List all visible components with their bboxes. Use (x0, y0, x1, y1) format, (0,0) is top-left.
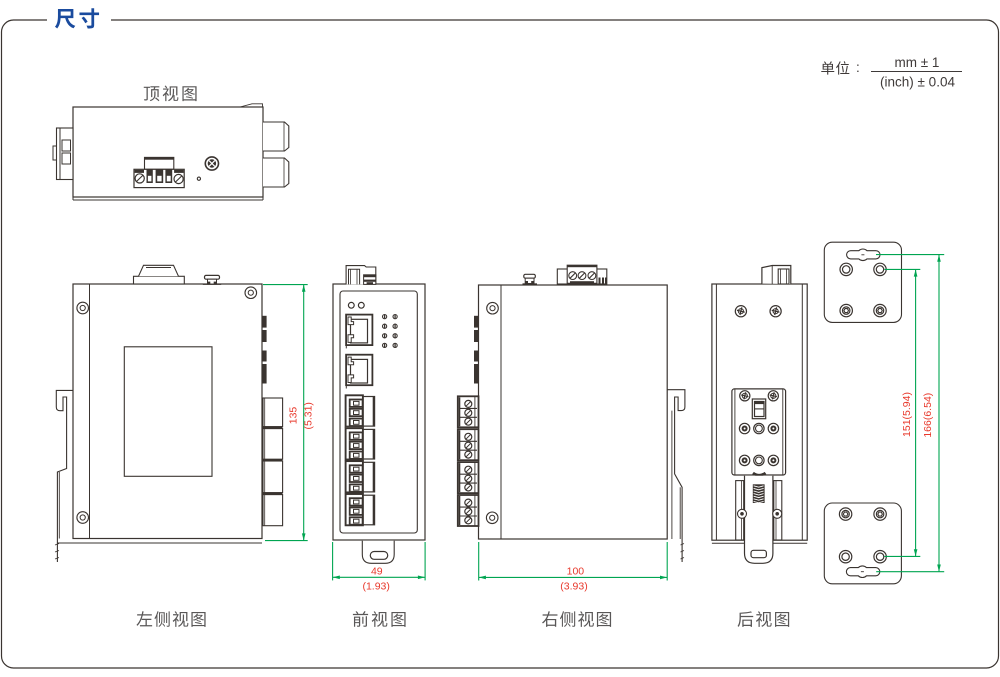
svg-text::: : (856, 60, 860, 75)
svg-text:(3.93): (3.93) (560, 581, 587, 593)
svg-text:151(5.94): 151(5.94) (901, 392, 913, 437)
svg-text:166(6.54): 166(6.54) (922, 393, 934, 438)
svg-text:135: 135 (288, 407, 300, 425)
svg-text:(5.31): (5.31) (302, 402, 314, 429)
svg-text:mm ± 1: mm ± 1 (895, 55, 940, 70)
svg-text:100: 100 (567, 565, 585, 577)
svg-text:(inch) ± 0.04: (inch) ± 0.04 (880, 75, 955, 90)
svg-text:(1.93): (1.93) (362, 581, 389, 593)
svg-text:49: 49 (371, 565, 383, 577)
